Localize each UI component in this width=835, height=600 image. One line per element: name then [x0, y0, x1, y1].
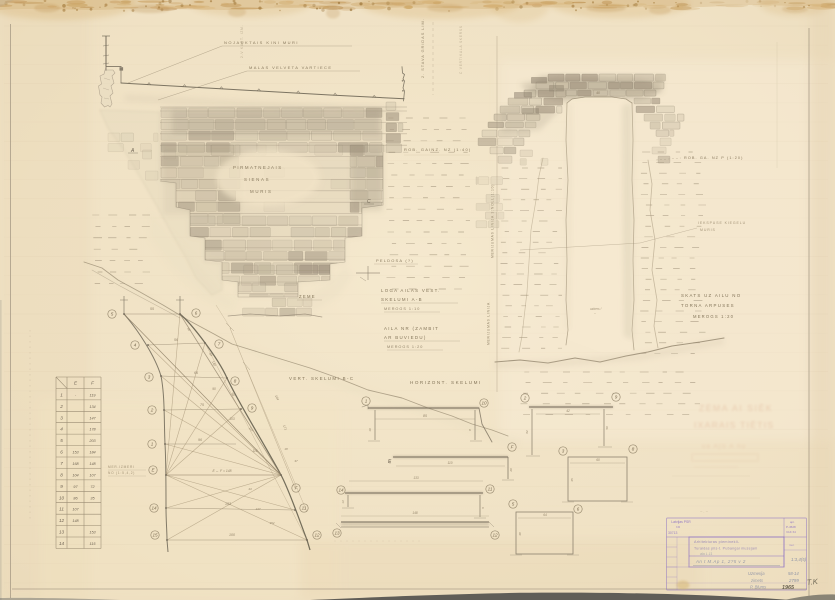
svg-text:90: 90	[212, 387, 216, 391]
svg-text:T.K: T.K	[806, 577, 819, 587]
svg-text:TORNA ARPUSES: TORNA ARPUSES	[681, 303, 735, 308]
svg-text:148: 148	[412, 511, 418, 515]
svg-text:ala L.11: ala L.11	[700, 552, 713, 556]
svg-text:1: 1	[365, 399, 368, 404]
svg-text:8: 8	[234, 379, 237, 384]
svg-text:168: 168	[72, 462, 79, 466]
svg-text:AR BUVIEDU): AR BUVIEDU)	[384, 335, 427, 340]
svg-text:48: 48	[518, 532, 522, 536]
svg-text:56: 56	[174, 338, 178, 342]
svg-text:14: 14	[151, 506, 157, 511]
svg-text:11: 11	[302, 506, 307, 511]
svg-text:110: 110	[447, 461, 452, 465]
svg-text:2: 2	[523, 396, 527, 401]
svg-text:107: 107	[89, 473, 96, 477]
svg-text:C VERTIKALA SKERSS: C VERTIKALA SKERSS	[459, 25, 463, 74]
svg-text:116: 116	[252, 449, 257, 453]
svg-text:11: 11	[488, 487, 493, 492]
svg-text:AILA NR (ZAMBIT: AILA NR (ZAMBIT	[384, 326, 439, 331]
svg-text:NOJAUKTAIS KINI MURI: NOJAUKTAIS KINI MURI	[224, 40, 299, 45]
svg-text:10: 10	[59, 495, 65, 500]
svg-text:20: 20	[509, 468, 513, 473]
svg-text:ZĖMA AI SIĒK: ZĖMA AI SIĒK	[699, 403, 773, 413]
svg-text:apt.: apt.	[790, 520, 795, 524]
svg-text:MERIJUMAS LINIJA: MERIJUMAS LINIJA	[487, 302, 491, 345]
svg-text:62: 62	[525, 430, 529, 434]
svg-text:SIENAS: SIENAS	[244, 177, 270, 182]
svg-text:2799: 2799	[788, 578, 799, 583]
svg-text:8: 8	[632, 447, 635, 452]
svg-text:75: 75	[200, 403, 204, 407]
svg-text:ROB. GAINZ. NZ (1:40): ROB. GAINZ. NZ (1:40)	[404, 147, 471, 152]
svg-text:5: 5	[60, 438, 63, 443]
svg-text:14: 14	[338, 488, 344, 493]
svg-text:133: 133	[413, 476, 419, 480]
svg-text:8: 8	[60, 472, 63, 477]
svg-text:100: 100	[229, 533, 235, 537]
svg-text:1: 1	[60, 392, 63, 397]
svg-text:10: 10	[368, 428, 372, 432]
svg-text:178: 178	[89, 428, 96, 432]
svg-text:LOGA AILAS VEST.: LOGA AILAS VEST.	[381, 288, 441, 293]
svg-text:184: 184	[89, 451, 95, 455]
svg-text:13: 13	[334, 531, 340, 536]
svg-text:153: 153	[72, 451, 79, 455]
svg-text:13: 13	[59, 530, 65, 535]
svg-text:HORIZONT. SKELUMI: HORIZONT. SKELUMI	[410, 380, 482, 385]
svg-text:42: 42	[566, 409, 570, 413]
svg-text:137: 137	[255, 507, 260, 511]
svg-text:43: 43	[248, 487, 252, 491]
svg-text:uā AĮS A nū: uā AĮS A nū	[702, 444, 746, 450]
svg-text:An t M.Ap 1, 2?5 v 2: An t M.Ap 1, 2?5 v 2	[695, 559, 746, 564]
svg-text:12: 12	[492, 533, 498, 538]
svg-text:153: 153	[89, 531, 96, 535]
svg-text:MEROGS 1:10: MEROGS 1:10	[384, 307, 420, 311]
svg-text:4: 4	[60, 427, 63, 432]
svg-text:Arhitekturas pieminekli-: Arhitekturas pieminekli-	[694, 540, 740, 544]
svg-text:VERT. SKELUMI B-C: VERT. SKELUMI B-C	[289, 376, 354, 381]
svg-text:P. Blums: P. Blums	[750, 585, 767, 590]
svg-text:12: 12	[59, 518, 65, 523]
svg-text:KM: KM	[676, 525, 681, 529]
svg-text:6: 6	[195, 311, 198, 316]
svg-text:5: 5	[111, 312, 114, 317]
svg-text:115: 115	[89, 542, 96, 546]
svg-text:60: 60	[596, 458, 600, 462]
svg-text:MEROGS 1:20: MEROGS 1:20	[387, 345, 423, 349]
svg-text:zimets: zimets	[750, 578, 764, 583]
svg-text:15: 15	[152, 533, 158, 538]
svg-text:9: 9	[251, 406, 254, 411]
svg-text:50: 50	[605, 426, 609, 430]
svg-text:PIRMATNEJAIS: PIRMATNEJAIS	[233, 165, 283, 170]
svg-text:64: 64	[543, 513, 547, 517]
svg-text:3: 3	[60, 415, 63, 420]
svg-text:uzbers !: uzbers !	[590, 307, 601, 311]
svg-text:3: 3	[562, 449, 565, 454]
svg-text:MER.IZMERI: MER.IZMERI	[108, 465, 135, 469]
svg-text:PELDOSA (?): PELDOSA (?)	[376, 258, 414, 263]
svg-text:148: 148	[72, 519, 79, 523]
svg-text:55: 55	[150, 307, 154, 311]
svg-text:MURIS: MURIS	[700, 228, 716, 232]
svg-text:2: 2	[150, 408, 154, 413]
svg-text:148: 148	[89, 462, 96, 466]
svg-text:7: 7	[218, 342, 221, 347]
svg-text:152: 152	[269, 521, 274, 525]
svg-text:37: 37	[294, 459, 298, 463]
svg-text:IXARAIS TIĒTIS: IXARAIS TIĒTIS	[694, 420, 774, 430]
svg-text:MALAS VELVETA VARTIECE: MALAS VELVETA VARTIECE	[249, 65, 332, 70]
svg-text:30713: 30713	[668, 531, 678, 535]
svg-text:Latvijas PSR: Latvijas PSR	[671, 520, 691, 524]
svg-text:45: 45	[570, 478, 574, 482]
svg-text:1:3,4(5): 1:3,4(5)	[791, 557, 807, 562]
svg-text:NO (1:5,4,2): NO (1:5,4,2)	[108, 471, 135, 475]
svg-text:18: 18	[284, 447, 288, 451]
svg-text:MEROGS 1:20: MEROGS 1:20	[693, 314, 734, 319]
svg-text:ROB. GA. NZ P (1:20): ROB. GA. NZ P (1:20)	[684, 156, 744, 160]
svg-text:58-14: 58-14	[788, 571, 799, 576]
svg-text:2-V KART. IZM.: 2-V KART. IZM.	[240, 25, 244, 58]
svg-text:VAK 64: VAK 64	[786, 530, 796, 534]
svg-text:ZEME: ZEME	[299, 294, 316, 299]
svg-text:40: 40	[596, 91, 600, 95]
svg-text:E ↔ F = 148: E ↔ F = 148	[212, 469, 231, 473]
svg-text:SKATS UZ AILU NO: SKATS UZ AILU NO	[681, 293, 742, 298]
svg-text:SKELUMI A-B: SKELUMI A-B	[381, 297, 423, 302]
svg-text:1: 1	[151, 442, 154, 447]
svg-text:mer.: mer.	[789, 543, 795, 547]
svg-text:147: 147	[89, 416, 96, 420]
svg-text:134: 134	[89, 405, 95, 409]
svg-text:~ . ~: ~ . ~	[700, 509, 709, 514]
svg-text:96: 96	[198, 438, 202, 442]
svg-text:11: 11	[59, 507, 64, 512]
svg-text:1965: 1965	[782, 585, 795, 591]
svg-text:153: 153	[225, 502, 231, 506]
svg-text:IEKSPUSE KIEGELU: IEKSPUSE KIEGELU	[698, 221, 746, 225]
svg-text:2. STAVA GRIDAS LIM.: 2. STAVA GRIDAS LIM.	[421, 18, 425, 78]
svg-text:MURIS: MURIS	[250, 189, 273, 194]
svg-text:119: 119	[89, 393, 96, 397]
svg-text:14: 14	[341, 500, 345, 504]
svg-text:9: 9	[615, 395, 618, 400]
svg-text:6: 6	[60, 450, 63, 455]
svg-text:104: 104	[72, 473, 78, 477]
svg-text:103: 103	[229, 417, 235, 421]
svg-text:Uzmerija: Uzmerija	[748, 571, 765, 576]
svg-text:6: 6	[577, 507, 580, 512]
svg-text:7: 7	[60, 461, 63, 466]
svg-text:P-4528: P-4528	[786, 525, 796, 529]
svg-text:12: 12	[314, 533, 320, 538]
svg-text:~: ~	[594, 312, 596, 316]
svg-text:2: 2	[59, 404, 63, 409]
svg-text:14: 14	[59, 541, 65, 546]
svg-text:9: 9	[60, 484, 63, 489]
svg-text:5: 5	[512, 502, 515, 507]
svg-text:3: 3	[148, 375, 151, 380]
svg-text:Turaidas pils-t. Pubangai muze: Turaidas pils-t. Pubangai muzejam	[694, 547, 757, 551]
svg-text:203: 203	[88, 439, 96, 443]
svg-text:10: 10	[481, 401, 487, 406]
svg-text:4: 4	[134, 343, 137, 348]
svg-text:107: 107	[72, 508, 79, 512]
svg-text:85: 85	[423, 414, 427, 418]
svg-text:66: 66	[194, 371, 198, 375]
